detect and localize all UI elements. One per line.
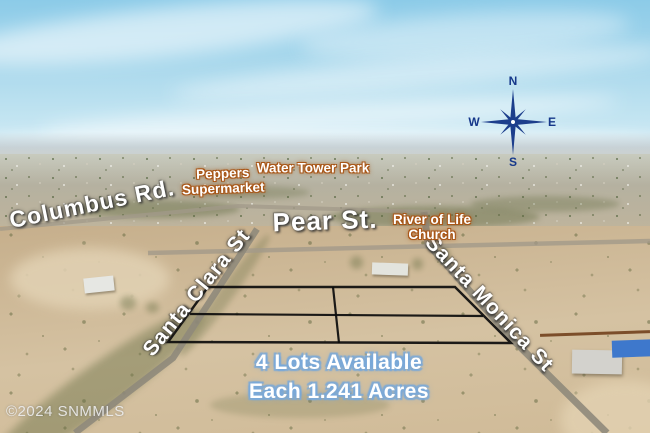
pear-st-label: Pear St. [272,204,378,239]
compass-north-label: N [509,76,518,88]
aerial-listing-photo: N S W E Columbus Rd. Pear St. Santa Clar… [0,0,650,433]
listing-caption: 4 Lots Available Each 1.241 Acres [249,348,429,406]
peppers-supermarket-label: Peppers Supermarket [181,164,265,197]
church-line1: River of Life [393,212,471,227]
compass-south-label: S [509,155,517,168]
listing-line2: Each 1.241 Acres [249,377,429,406]
church-line2: Church [393,227,471,242]
peppers-line2: Supermarket [182,180,265,198]
compass-east-label: E [548,115,556,129]
compass-west-label: W [468,115,480,129]
water-tower-park-label: Water Tower Park [257,160,370,175]
mls-watermark: ©2024 SNMMLS [6,403,125,420]
river-of-life-church-label: River of Life Church [393,212,471,242]
compass-rose-icon: N S W E [468,76,558,168]
listing-line1: 4 Lots Available [249,348,429,377]
